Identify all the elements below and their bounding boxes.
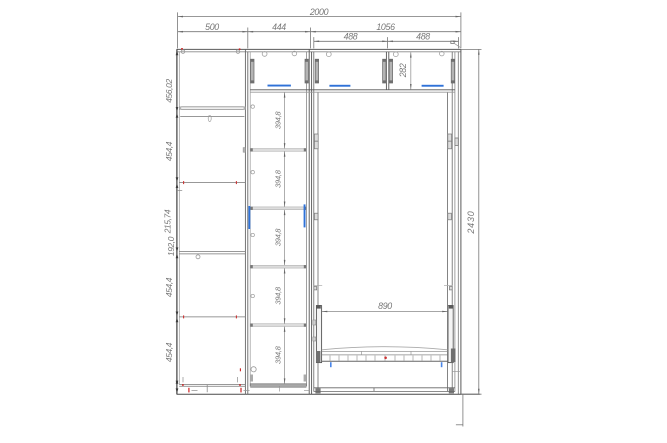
svg-text:394,8: 394,8 [274, 111, 283, 130]
svg-text:488: 488 [416, 32, 430, 42]
svg-text:1056: 1056 [376, 22, 395, 32]
svg-text:2430: 2430 [466, 210, 476, 234]
svg-text:456,02: 456,02 [164, 79, 174, 103]
svg-text:394,8: 394,8 [274, 228, 283, 247]
svg-text:394,8: 394,8 [274, 169, 283, 188]
svg-text:488: 488 [344, 32, 358, 42]
svg-text:215,74: 215,74 [162, 209, 172, 234]
svg-text:394,8: 394,8 [274, 286, 283, 305]
svg-text:2000: 2000 [309, 7, 329, 17]
svg-text:192,0: 192,0 [166, 236, 176, 256]
svg-text:282: 282 [398, 63, 408, 78]
svg-text:454,4: 454,4 [164, 277, 174, 297]
svg-text:394,8: 394,8 [274, 345, 283, 364]
svg-text:890: 890 [378, 301, 392, 311]
svg-text:444: 444 [272, 22, 286, 32]
svg-text:454,4: 454,4 [164, 342, 174, 362]
svg-text:500: 500 [205, 22, 219, 32]
svg-text:454,4: 454,4 [164, 141, 174, 161]
